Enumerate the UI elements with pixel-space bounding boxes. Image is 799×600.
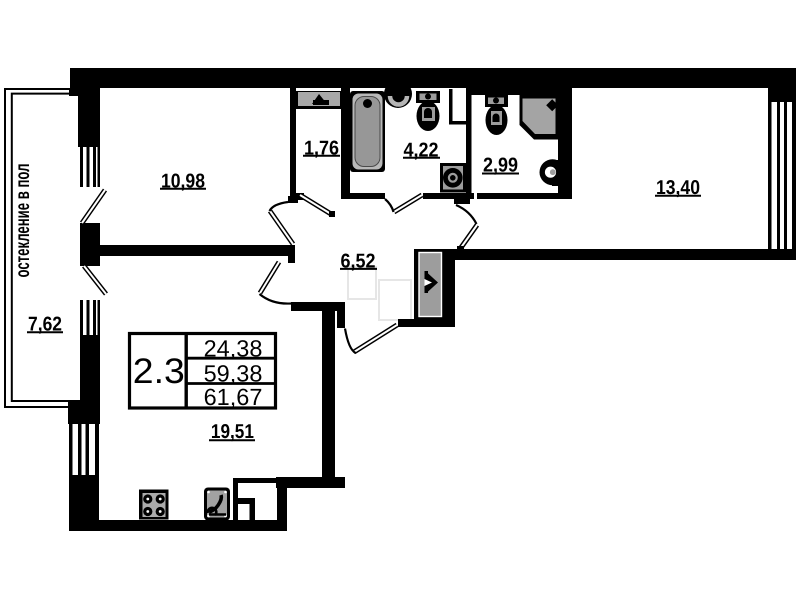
svg-text:59,38: 59,38 [204, 361, 263, 387]
svg-text:остекление в пол: остекление в пол [12, 164, 34, 278]
svg-text:24,38: 24,38 [204, 336, 263, 362]
svg-text:61,67: 61,67 [204, 384, 263, 410]
svg-text:2.3: 2.3 [133, 351, 185, 391]
